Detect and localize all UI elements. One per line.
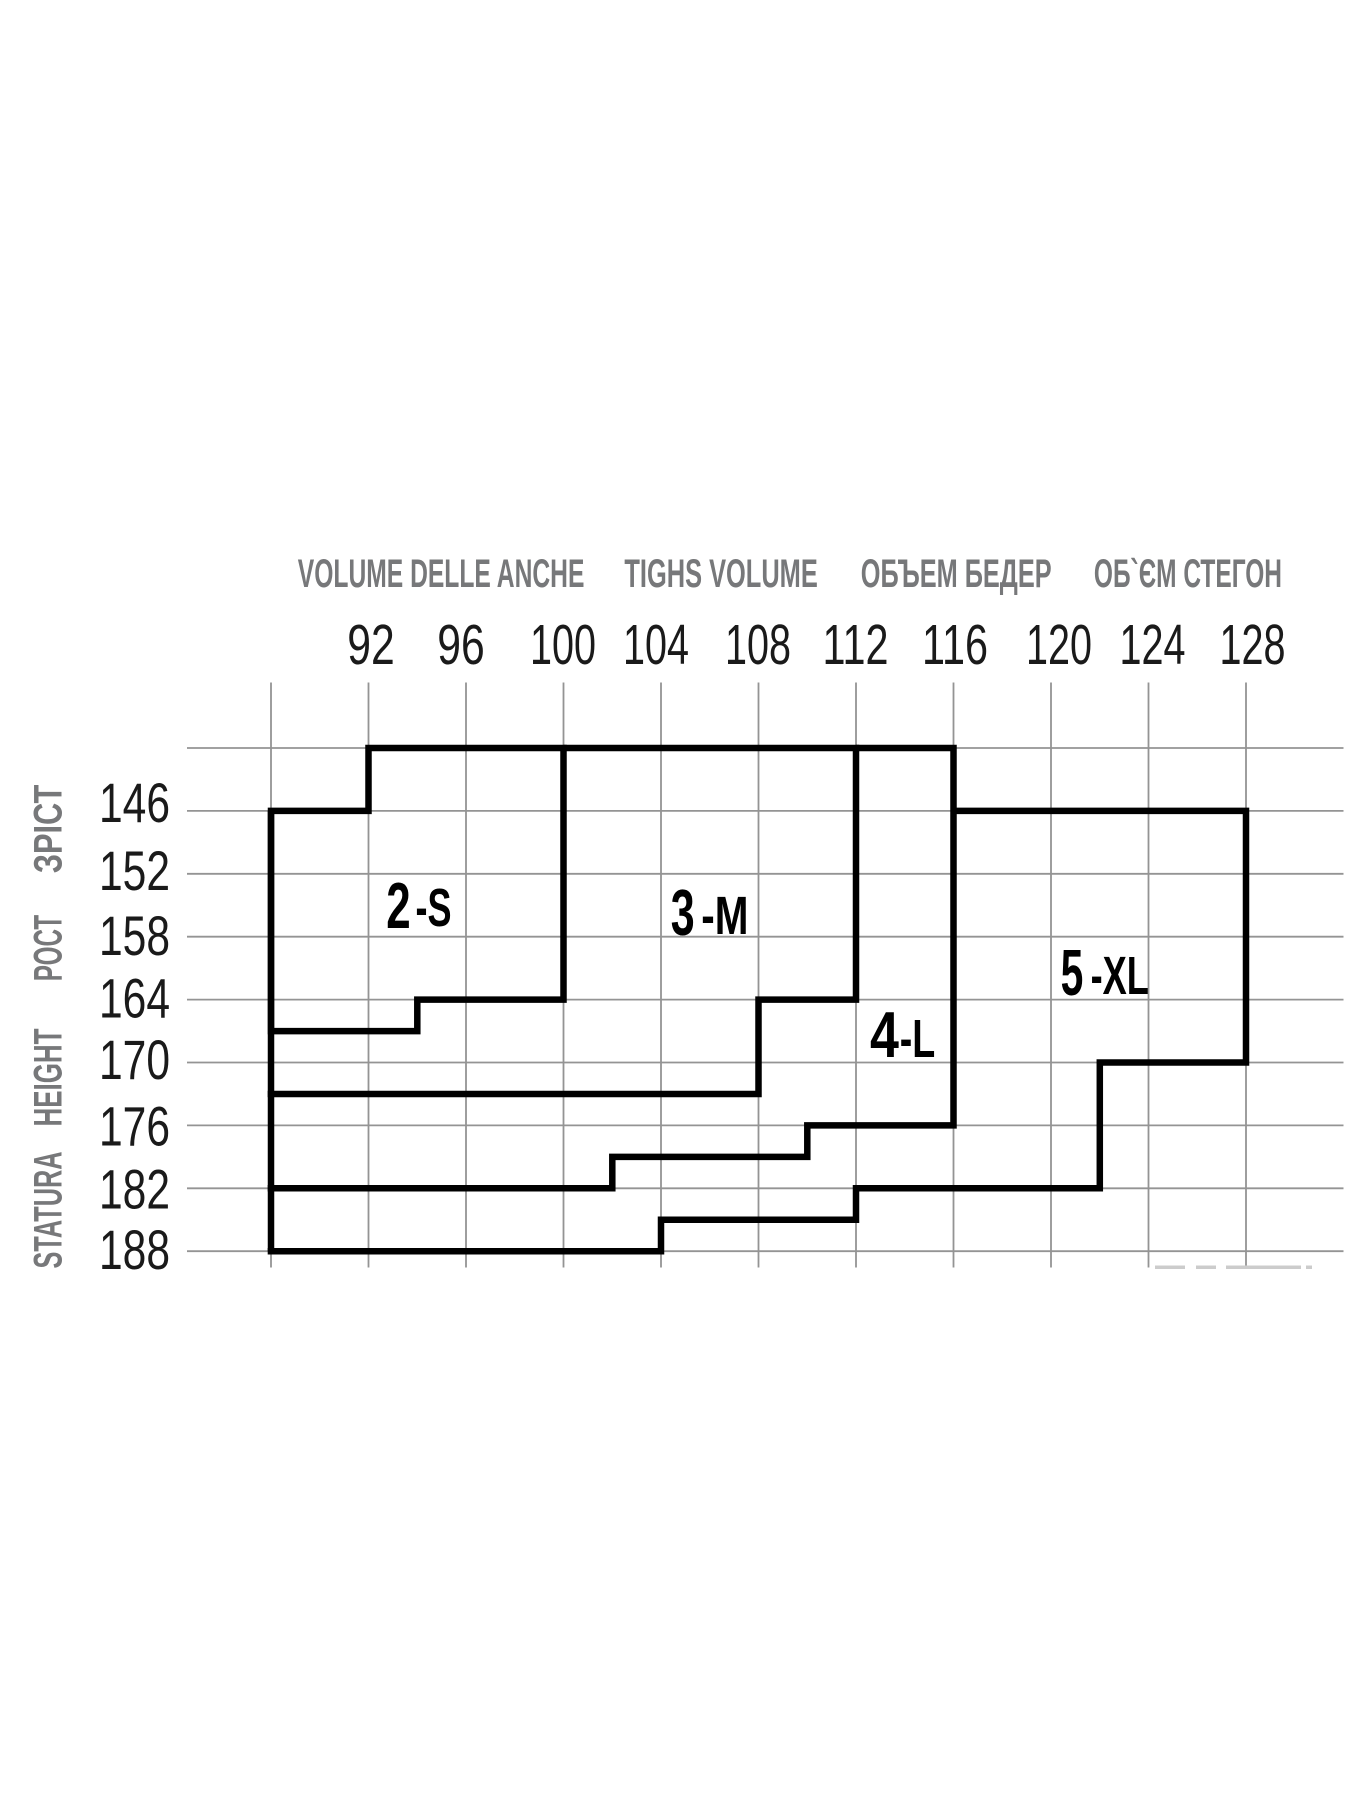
svg-text:ОБ`ЄМ СТЕГОН: ОБ`ЄМ СТЕГОН: [1094, 552, 1282, 596]
svg-text:2: 2: [386, 869, 410, 942]
svg-text:-M: -M: [701, 886, 748, 946]
svg-text:116: 116: [922, 613, 988, 677]
svg-text:TIGHS VOLUME: TIGHS VOLUME: [624, 552, 817, 596]
svg-text:188: 188: [99, 1218, 170, 1281]
svg-text:VOLUME DELLE ANCHE: VOLUME DELLE ANCHE: [298, 552, 585, 596]
svg-text:-XL: -XL: [1091, 946, 1149, 1006]
svg-text:128: 128: [1220, 613, 1286, 677]
svg-text:124: 124: [1120, 613, 1186, 677]
svg-text:ОБЪЕМ БЕДЕР: ОБЪЕМ БЕДЕР: [861, 552, 1052, 596]
svg-text:5: 5: [1061, 936, 1084, 1009]
svg-text:ЗРІСТ: ЗРІСТ: [27, 785, 71, 874]
svg-text:176: 176: [99, 1095, 170, 1158]
svg-text:-L: -L: [900, 1009, 936, 1069]
svg-text:-S: -S: [416, 878, 452, 938]
svg-text:112: 112: [823, 613, 889, 677]
svg-text:4: 4: [870, 998, 899, 1071]
svg-text:108: 108: [725, 613, 791, 677]
svg-text:152: 152: [99, 839, 170, 902]
svg-text:HEIGHT: HEIGHT: [27, 1028, 71, 1126]
svg-text:96: 96: [437, 613, 485, 677]
svg-text:100: 100: [530, 613, 596, 677]
svg-text:STATURA: STATURA: [27, 1151, 71, 1268]
svg-text:158: 158: [99, 904, 170, 967]
svg-text:182: 182: [99, 1158, 170, 1221]
svg-text:104: 104: [623, 613, 689, 677]
svg-text:120: 120: [1026, 613, 1092, 677]
svg-text:РОСТ: РОСТ: [27, 915, 71, 981]
svg-text:170: 170: [99, 1028, 170, 1091]
svg-text:146: 146: [99, 771, 170, 834]
svg-text:3: 3: [671, 876, 695, 949]
svg-text:164: 164: [99, 967, 170, 1030]
svg-text:92: 92: [347, 613, 395, 677]
